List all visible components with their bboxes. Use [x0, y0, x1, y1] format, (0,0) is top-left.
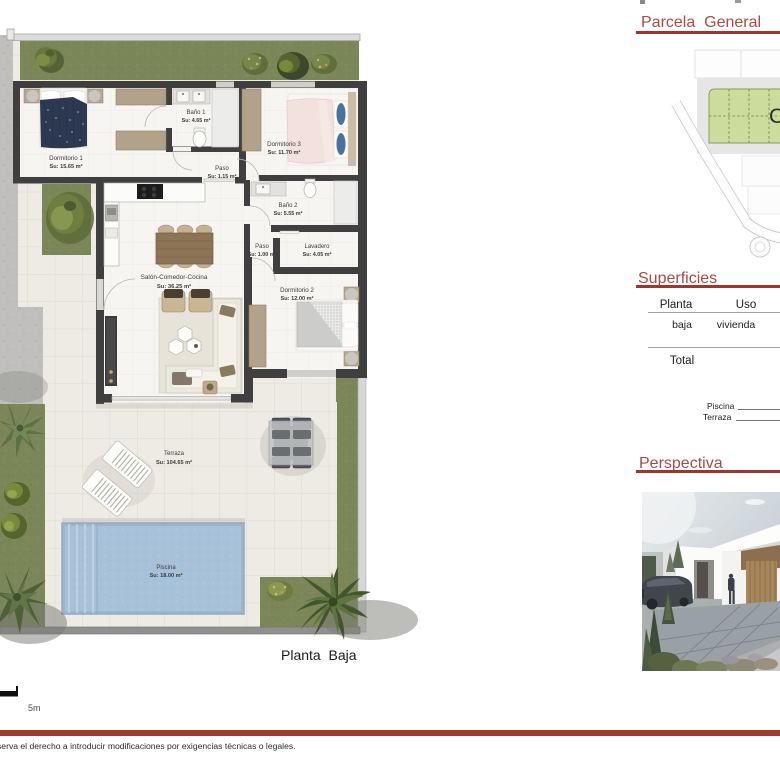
svg-text:Dormitorio 3: Dormitorio 3	[267, 141, 301, 148]
svg-text:Su: 4.65 m²: Su: 4.65 m²	[182, 118, 211, 124]
svg-text:Su: 5.55 m²: Su: 5.55 m²	[274, 211, 303, 217]
svg-text:Terraza: Terraza	[164, 451, 185, 457]
svg-text:Dormitorio 2: Dormitorio 2	[280, 287, 314, 294]
svg-text:Planta: Planta	[660, 299, 693, 311]
svg-text:Su: 11.70 m²: Su: 11.70 m²	[268, 149, 301, 156]
svg-text:Su: 4.05 m²: Su: 4.05 m²	[303, 252, 332, 258]
svg-text:Su: 1.00 m²: Su: 1.00 m²	[248, 252, 277, 258]
svg-text:Su: 36.25 m²: Su: 36.25 m²	[157, 283, 191, 290]
svg-text:vivienda: vivienda	[717, 319, 756, 331]
svg-text:Piscina: Piscina	[156, 565, 176, 571]
svg-text:Su: 18.00 m²: Su: 18.00 m²	[150, 572, 183, 579]
svg-text:Lavadero: Lavadero	[304, 244, 330, 250]
svg-text:Terraza: Terraza	[703, 412, 732, 422]
svg-text:Piscina: Piscina	[707, 401, 735, 411]
svg-text:Su: 15.65 m²: Su: 15.65 m²	[50, 163, 83, 170]
svg-text:Su: 104.65 m²: Su: 104.65 m²	[156, 459, 192, 466]
svg-text:Baño 2: Baño 2	[278, 203, 298, 209]
svg-text:C: C	[769, 105, 780, 128]
svg-text:Dormitorio 1: Dormitorio 1	[49, 155, 83, 162]
svg-text:Planta Baja: Planta Baja	[281, 647, 357, 663]
svg-text:serva el derecho a introducir: serva el derecho a introducir modificaci…	[0, 741, 296, 751]
svg-text:Perspectiva: Perspectiva	[639, 455, 723, 472]
svg-text:Superficies: Superficies	[638, 270, 717, 287]
svg-text:5m: 5m	[28, 703, 41, 713]
svg-text:Paso: Paso	[255, 244, 269, 250]
svg-text:baja: baja	[672, 319, 692, 331]
svg-text:Total: Total	[670, 355, 694, 367]
svg-text:Salón-Comedor-Cocina: Salón-Comedor-Cocina	[141, 274, 208, 281]
svg-text:Paso: Paso	[215, 166, 229, 172]
svg-text:Su: 1.15 m²: Su: 1.15 m²	[208, 174, 237, 180]
svg-text:Parcela General: Parcela General	[641, 14, 761, 31]
svg-text:Uso: Uso	[736, 299, 756, 311]
svg-text:Baño 1: Baño 1	[186, 110, 206, 116]
